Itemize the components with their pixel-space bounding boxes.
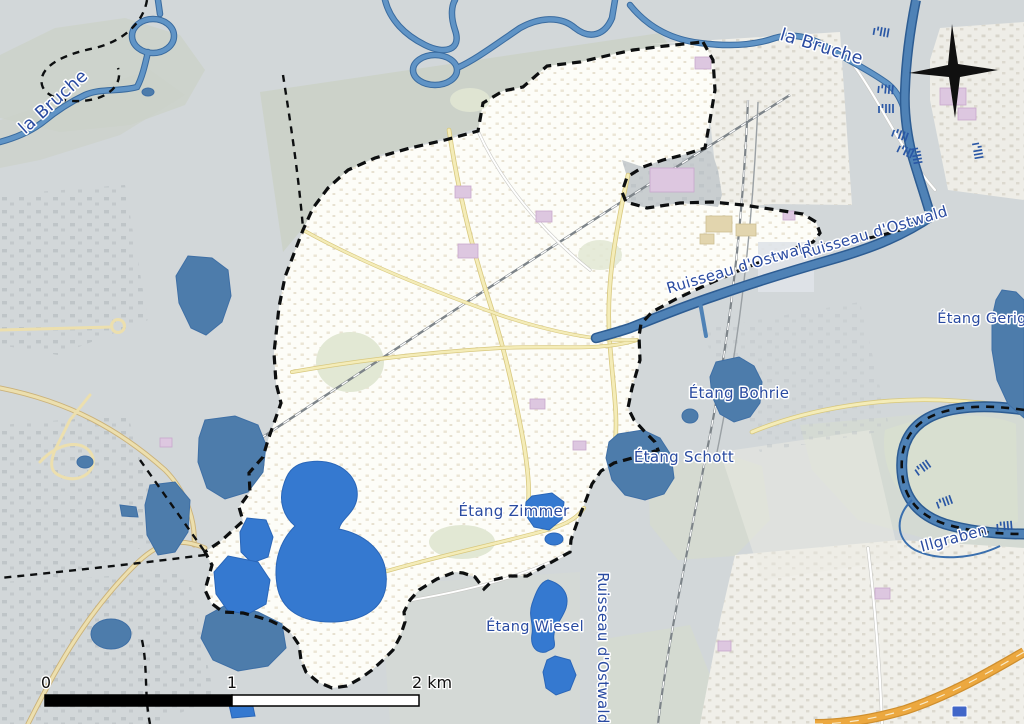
scale-label-2km: 2 km (412, 673, 452, 692)
label-etang-schott: Étang Schott (634, 447, 734, 466)
scale-bar-black-segment (45, 695, 232, 706)
scale-bar-white-segment (232, 695, 419, 706)
scale-label-1: 1 (227, 673, 237, 692)
motorway-shield (952, 706, 967, 717)
label-etang-zimmer: Étang Zimmer (458, 501, 570, 520)
label-etang-gerig: Étang Gerig (937, 310, 1024, 327)
label-etang-bohrie: Étang Bohrie (689, 383, 790, 402)
label-etang-wiesel: Étang Wiesel (486, 618, 584, 635)
commune-location-map: la Bruche la Bruche Ruisseau d'Ostwald R… (0, 0, 1024, 724)
scale-label-0: 0 (41, 673, 51, 692)
label-ruisseau-dostwald-south: Ruisseau d'Ostwald (594, 572, 612, 723)
map-canvas: la Bruche la Bruche Ruisseau d'Ostwald R… (0, 0, 1024, 724)
